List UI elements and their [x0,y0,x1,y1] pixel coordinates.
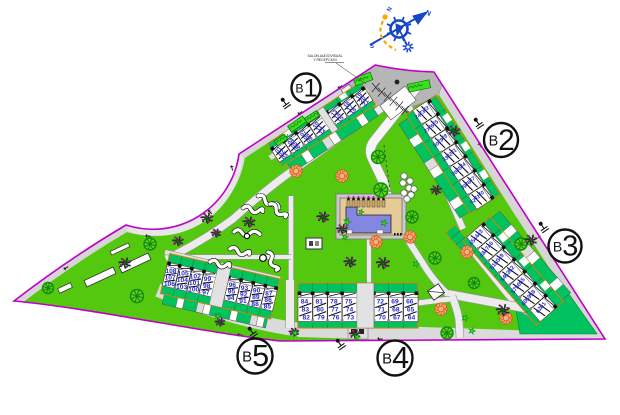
svg-text:70: 70 [378,315,386,322]
svg-text:75: 75 [345,299,353,306]
svg-text:B: B [242,350,252,366]
svg-text:68: 68 [392,307,400,314]
svg-text:B: B [553,238,562,254]
svg-text:83: 83 [302,307,310,314]
svg-text:65: 65 [407,307,415,314]
svg-text:94: 94 [227,295,235,302]
svg-text:64: 64 [408,315,416,322]
svg-text:B: B [489,133,499,149]
svg-text:3: 3 [562,231,578,263]
svg-text:106: 106 [164,281,175,288]
svg-text:67: 67 [393,315,401,322]
svg-text:73: 73 [347,315,355,322]
svg-text:76: 76 [332,315,340,322]
svg-text:85: 85 [264,304,272,311]
svg-text:77: 77 [331,307,339,314]
svg-text:71: 71 [377,307,385,314]
svg-text:80: 80 [316,307,324,314]
svg-text:103: 103 [176,284,187,291]
svg-text:82: 82 [302,315,310,322]
svg-text:78: 78 [330,299,338,306]
svg-text:91: 91 [239,298,247,305]
svg-text:88: 88 [251,301,259,308]
svg-text:81: 81 [315,299,323,306]
svg-text:S: S [370,44,374,50]
svg-text:84: 84 [301,299,309,306]
svg-text:97: 97 [202,289,210,296]
svg-text:79: 79 [317,315,325,322]
svg-text:4: 4 [392,341,409,375]
svg-text:74: 74 [346,307,354,314]
svg-text:Y RECEPCION: Y RECEPCION [313,58,337,62]
svg-text:5: 5 [252,339,269,373]
svg-text:1: 1 [304,74,318,102]
svg-text:2: 2 [498,124,515,157]
svg-text:66: 66 [406,299,414,306]
svg-text:72: 72 [377,299,385,306]
svg-text:B: B [382,352,392,368]
svg-text:69: 69 [391,299,399,306]
svg-text:B: B [295,82,303,96]
svg-text:100: 100 [188,287,199,294]
